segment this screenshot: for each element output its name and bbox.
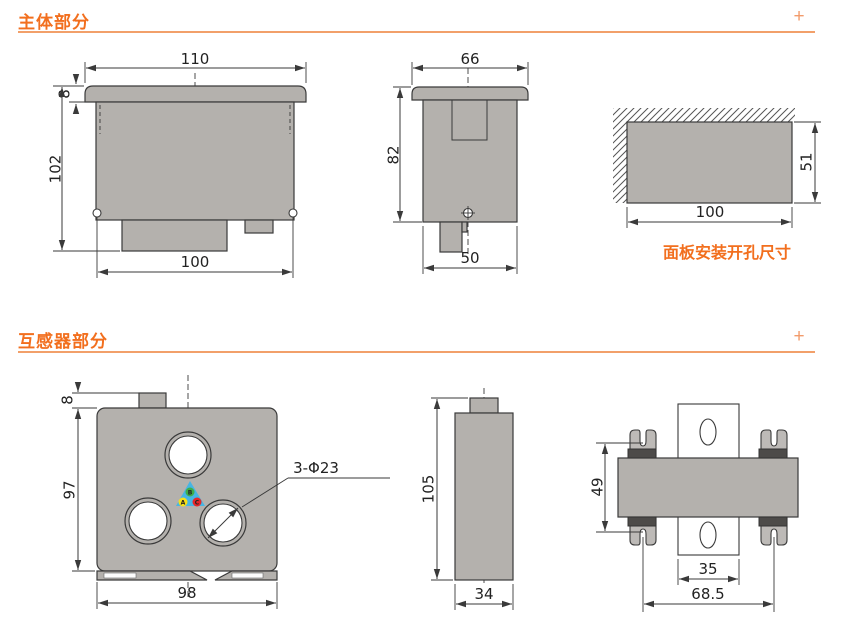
side-bezel bbox=[412, 87, 528, 100]
foot-slot bbox=[232, 573, 263, 578]
clamp-screw bbox=[289, 209, 297, 217]
dim-side-height: 82 bbox=[385, 145, 403, 164]
hole-top bbox=[169, 436, 207, 474]
section-divider bbox=[18, 31, 815, 33]
dim-clip-span: 68.5 bbox=[691, 585, 724, 603]
dim-ct-tab-height: 8 bbox=[59, 395, 77, 405]
terminal-block bbox=[122, 220, 227, 251]
terminal-block-small bbox=[245, 220, 273, 233]
front-bezel bbox=[85, 86, 306, 102]
ct-side-body bbox=[455, 413, 513, 580]
phase-c-label: C bbox=[195, 500, 200, 507]
dim-total-height: 102 bbox=[47, 155, 65, 184]
phase-b-label: B bbox=[188, 490, 193, 497]
ct-top-view: 49 35 68.5 bbox=[590, 385, 843, 630]
hole-left bbox=[129, 502, 167, 540]
dim-rail-width: 35 bbox=[698, 560, 717, 578]
phase-a-label: A bbox=[181, 500, 186, 507]
hatch-left bbox=[613, 122, 627, 203]
rail-slot-bottom bbox=[700, 522, 716, 548]
side-body bbox=[423, 100, 517, 222]
dim-cutout-width: 100 bbox=[696, 203, 725, 221]
dim-ct-width: 98 bbox=[177, 584, 196, 602]
dim-side-top-width: 66 bbox=[460, 50, 479, 68]
foot-slot bbox=[104, 573, 136, 578]
main-front-view: 110 8 102 100 bbox=[40, 50, 330, 285]
ct-side-view: 105 34 bbox=[415, 370, 545, 620]
dim-side-bottom-width: 50 bbox=[460, 249, 479, 267]
mount-clip bbox=[759, 517, 787, 545]
dim-ct-side-height: 105 bbox=[420, 475, 438, 504]
rail-slot-top bbox=[700, 419, 716, 445]
dim-body-width: 100 bbox=[181, 253, 210, 271]
cutout-rect bbox=[627, 122, 792, 203]
hatch-top bbox=[613, 108, 795, 122]
dim-cutout-height: 51 bbox=[798, 152, 816, 171]
ct-front-view: B A C 8 97 98 3-Φ23 bbox=[45, 370, 405, 620]
section-divider bbox=[18, 351, 815, 353]
main-side-view: 66 82 50 bbox=[385, 50, 550, 285]
section-title-main-body: 主体部分 bbox=[18, 8, 90, 33]
mount-clip bbox=[628, 430, 656, 458]
ct-top-body bbox=[618, 458, 798, 517]
expand-plus-icon[interactable]: + bbox=[789, 326, 809, 348]
side-foot bbox=[440, 222, 462, 252]
mount-clip bbox=[759, 430, 787, 458]
dim-ct-height: 97 bbox=[61, 480, 79, 499]
dim-flange-height: 8 bbox=[56, 89, 74, 99]
mount-clip bbox=[628, 517, 656, 545]
dim-top-width: 110 bbox=[181, 50, 210, 68]
hole-diameter-label: 3-Φ23 bbox=[293, 459, 339, 477]
panel-cutout-view: 51 100 面板安装开孔尺寸 bbox=[605, 95, 843, 270]
datasheet-page: 主体部分 + 110 8 102 100 bbox=[0, 0, 843, 634]
dim-ct-side-width: 34 bbox=[474, 585, 493, 603]
side-foot-step bbox=[462, 222, 467, 232]
front-body bbox=[96, 102, 294, 220]
ct-top-tab bbox=[139, 393, 166, 408]
dim-clip-height: 49 bbox=[590, 477, 607, 496]
clamp-screw bbox=[93, 209, 101, 217]
ct-side-tab bbox=[470, 398, 498, 413]
expand-plus-icon[interactable]: + bbox=[789, 6, 809, 28]
cutout-caption: 面板安装开孔尺寸 bbox=[663, 243, 791, 262]
section-title-transformer: 互感器部分 bbox=[18, 327, 108, 352]
